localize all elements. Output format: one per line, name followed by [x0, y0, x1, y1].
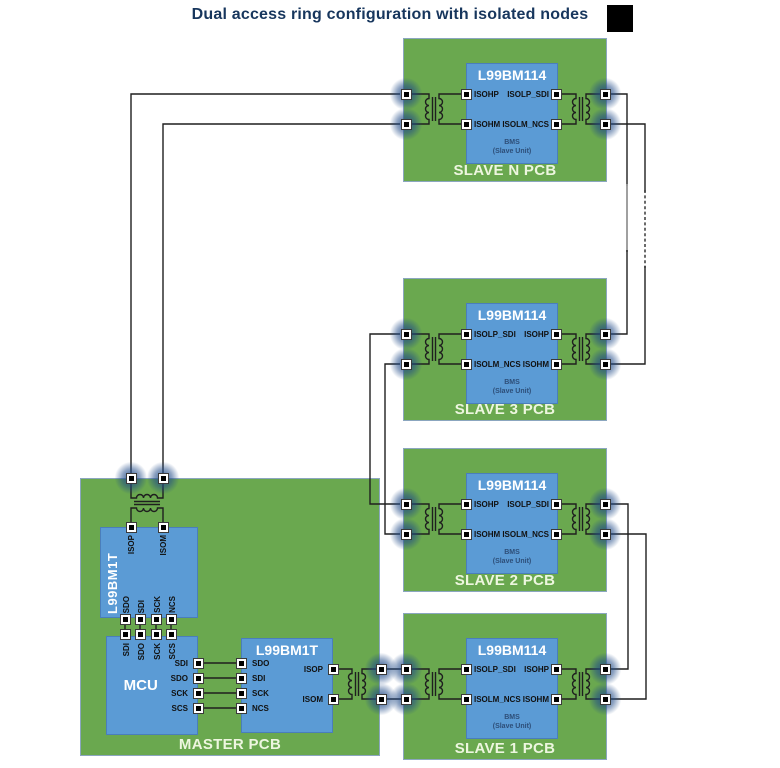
transformer-core	[433, 97, 436, 121]
pin-pad	[461, 664, 472, 675]
transformer-slave3-right	[556, 334, 605, 364]
connector-pad	[600, 664, 611, 675]
diagram-canvas: Dual access ring configuration with isol…	[0, 0, 780, 768]
pin-pad	[166, 614, 177, 625]
spi-wires	[198, 663, 241, 708]
pin-pad	[551, 499, 562, 510]
pin-pad	[461, 694, 472, 705]
pin-pad	[461, 499, 472, 510]
pin-pad	[461, 359, 472, 370]
pin-pad	[461, 329, 472, 340]
pin-pad	[166, 629, 177, 640]
pin-pad	[120, 614, 131, 625]
pin-pad	[551, 119, 562, 130]
pin-pad	[461, 529, 472, 540]
connector-pad	[401, 119, 412, 130]
pin-pad	[461, 119, 472, 130]
transformer-core	[580, 97, 583, 121]
transformer-slave2-right	[556, 504, 605, 534]
connector-pad	[401, 529, 412, 540]
spi-stack-wires	[125, 619, 171, 634]
pin-pad	[461, 89, 472, 100]
pin-pad	[551, 329, 562, 340]
transformer-master-top	[131, 481, 163, 524]
connector-pad	[600, 119, 611, 130]
connector-pad	[600, 499, 611, 510]
connector-pad	[401, 694, 412, 705]
connector-pad	[600, 329, 611, 340]
transformer-core	[433, 672, 436, 696]
pin-pad	[551, 694, 562, 705]
connector-pad	[401, 89, 412, 100]
pin-pad	[151, 614, 162, 625]
transformer-slave3-left	[406, 334, 466, 364]
transformer-slaveN-left	[406, 94, 466, 124]
pin-pad	[236, 703, 247, 714]
pin-pad	[236, 688, 247, 699]
pin-pad	[193, 658, 204, 669]
wiring-layer	[0, 0, 780, 768]
transformer-core	[580, 337, 583, 361]
ring-wire-slave3-to-slave2-m	[385, 364, 400, 534]
ring-wire-master-to-slaveN-m	[163, 124, 400, 478]
transformer-slave1-right	[556, 669, 605, 699]
transformer-core	[580, 672, 583, 696]
pin-pad	[126, 522, 137, 533]
pin-pad	[551, 529, 562, 540]
pin-pad	[135, 629, 146, 640]
connector-pad	[158, 473, 169, 484]
transformer-core	[356, 672, 359, 696]
pin-pad	[551, 664, 562, 675]
transformer-core	[134, 502, 160, 505]
transformer-slave1-left	[406, 669, 466, 699]
connector-pad	[600, 694, 611, 705]
pin-pad	[158, 522, 169, 533]
connector-pad	[376, 664, 387, 675]
pin-pad	[236, 658, 247, 669]
ring-wire-master-to-slaveN-p	[131, 94, 400, 478]
pin-pad	[328, 664, 339, 675]
ring-wire-slaveN-to-slave3-p	[610, 94, 627, 186]
transformer-slaveN-right	[556, 94, 605, 124]
pin-pad	[193, 673, 204, 684]
connector-pad	[600, 529, 611, 540]
connector-pad	[401, 329, 412, 340]
connector-pad	[401, 664, 412, 675]
transformer-master-right	[333, 669, 381, 699]
connector-pad	[600, 89, 611, 100]
transformer-core	[580, 507, 583, 531]
pin-pad	[551, 89, 562, 100]
pin-pad	[193, 703, 204, 714]
pin-pad	[151, 629, 162, 640]
transformer-core	[433, 507, 436, 531]
pin-pad	[328, 694, 339, 705]
transformer-slave2-left	[406, 504, 466, 534]
connector-pad	[126, 473, 137, 484]
pin-pad	[193, 688, 204, 699]
pin-pad	[135, 614, 146, 625]
pin-pad	[120, 629, 131, 640]
connector-pad	[600, 359, 611, 370]
connector-pad	[401, 359, 412, 370]
ring-wire-slave2-to-slave1-p	[610, 504, 628, 669]
pin-pad	[551, 359, 562, 370]
connector-pad	[376, 694, 387, 705]
transformer-core	[433, 337, 436, 361]
pin-pad	[236, 673, 247, 684]
ring-wire-slaveN-to-slave3-p2	[610, 250, 627, 334]
connector-pad	[401, 499, 412, 510]
